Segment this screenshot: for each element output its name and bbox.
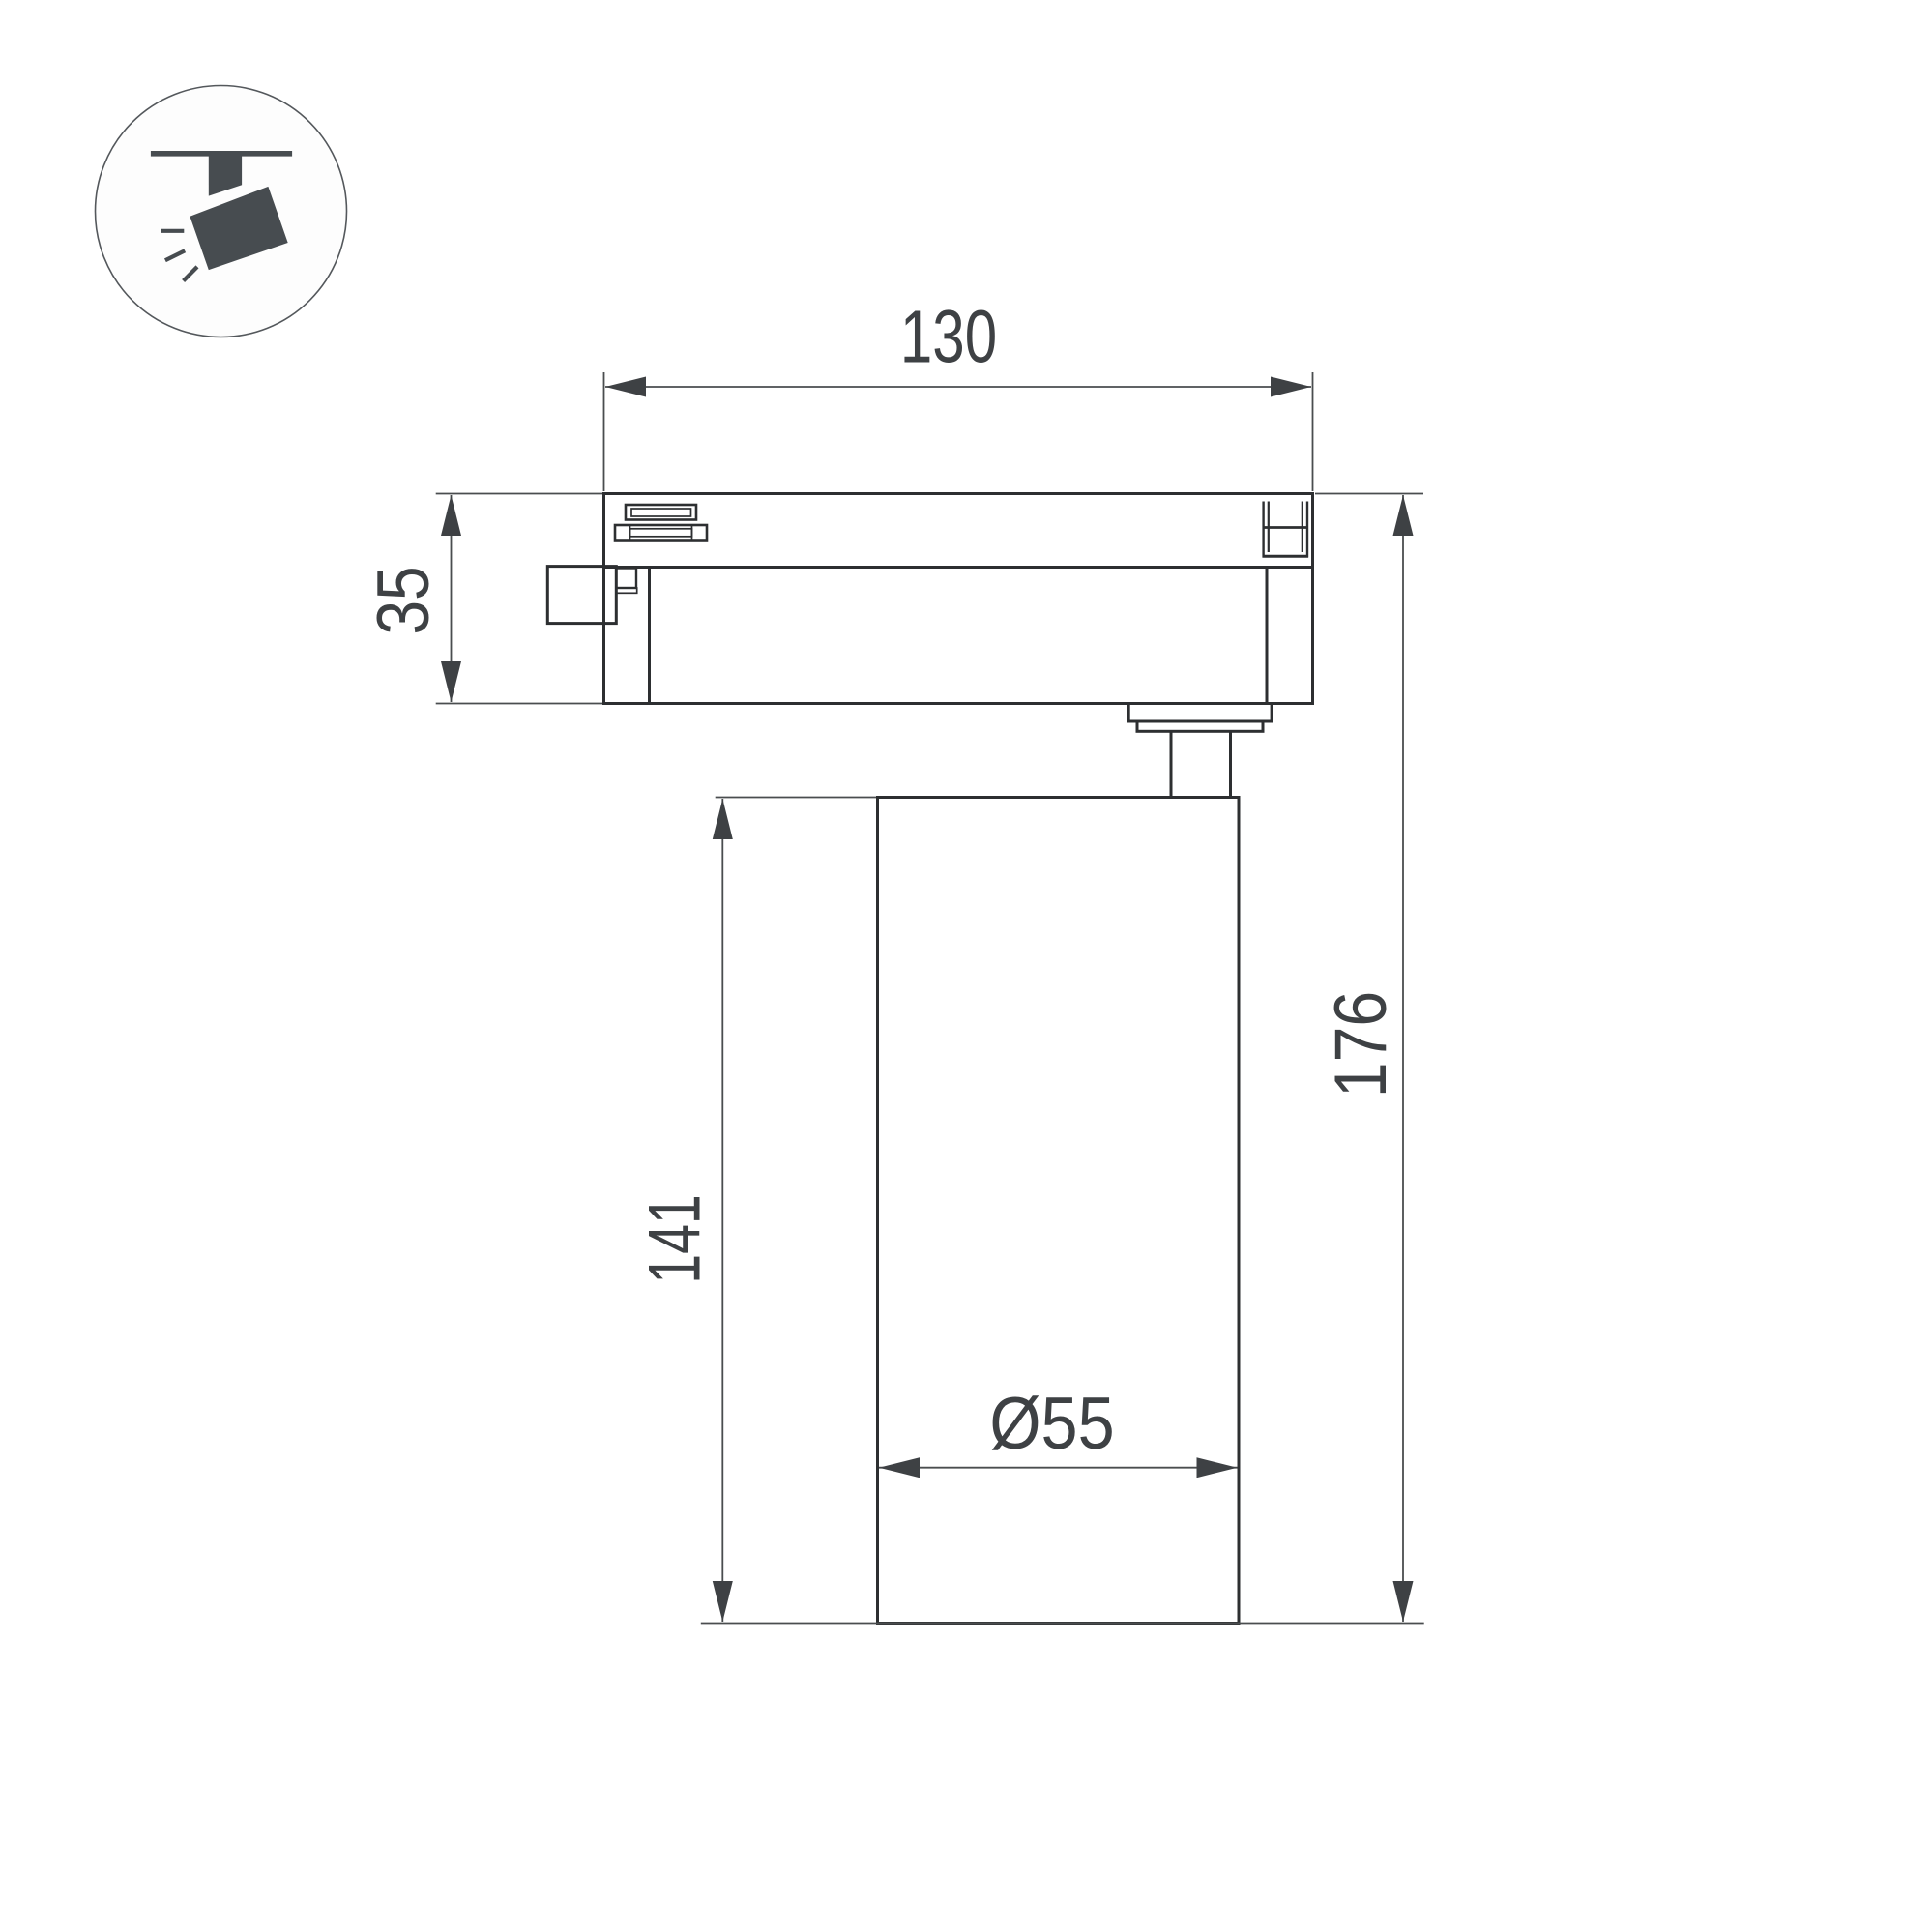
- svg-text:130: 130: [900, 294, 997, 378]
- svg-text:176: 176: [1321, 991, 1402, 1098]
- svg-text:Ø55: Ø55: [989, 1384, 1114, 1465]
- svg-text:141: 141: [634, 1194, 717, 1284]
- svg-text:35: 35: [362, 566, 445, 634]
